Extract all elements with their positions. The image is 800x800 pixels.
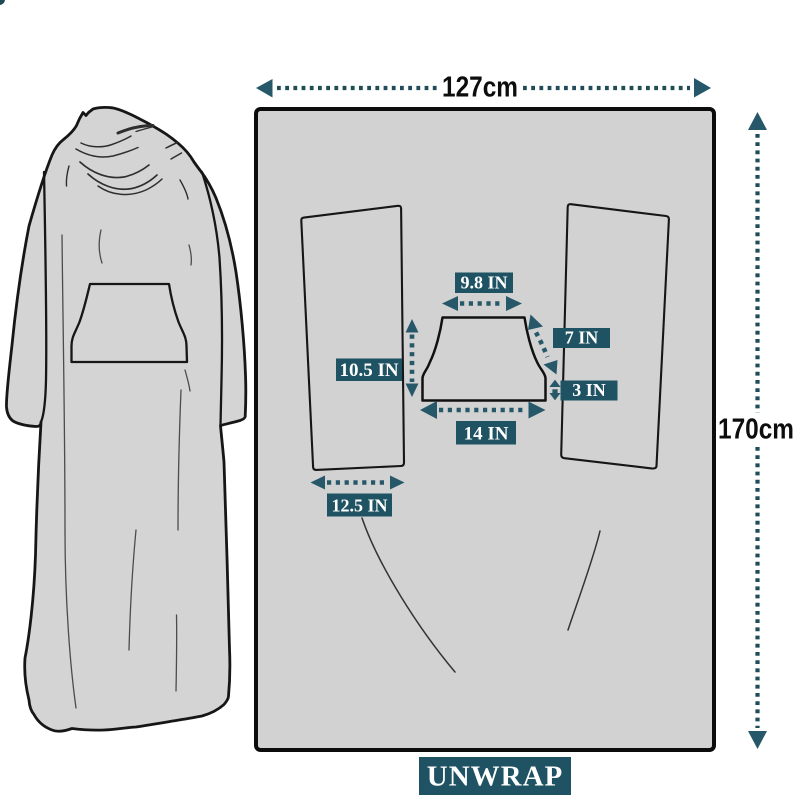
svg-text:127cm: 127cm <box>442 72 518 104</box>
svg-text:14 IN: 14 IN <box>464 424 509 445</box>
svg-text:10.5 IN: 10.5 IN <box>339 360 398 381</box>
svg-text:7 IN: 7 IN <box>565 328 599 348</box>
svg-text:170cm: 170cm <box>718 414 794 446</box>
svg-text:UNWRAP: UNWRAP <box>427 761 564 793</box>
svg-text:12.5 IN: 12.5 IN <box>331 496 387 516</box>
svg-text:9.8 IN: 9.8 IN <box>460 273 507 293</box>
svg-text:3 IN: 3 IN <box>572 380 606 400</box>
